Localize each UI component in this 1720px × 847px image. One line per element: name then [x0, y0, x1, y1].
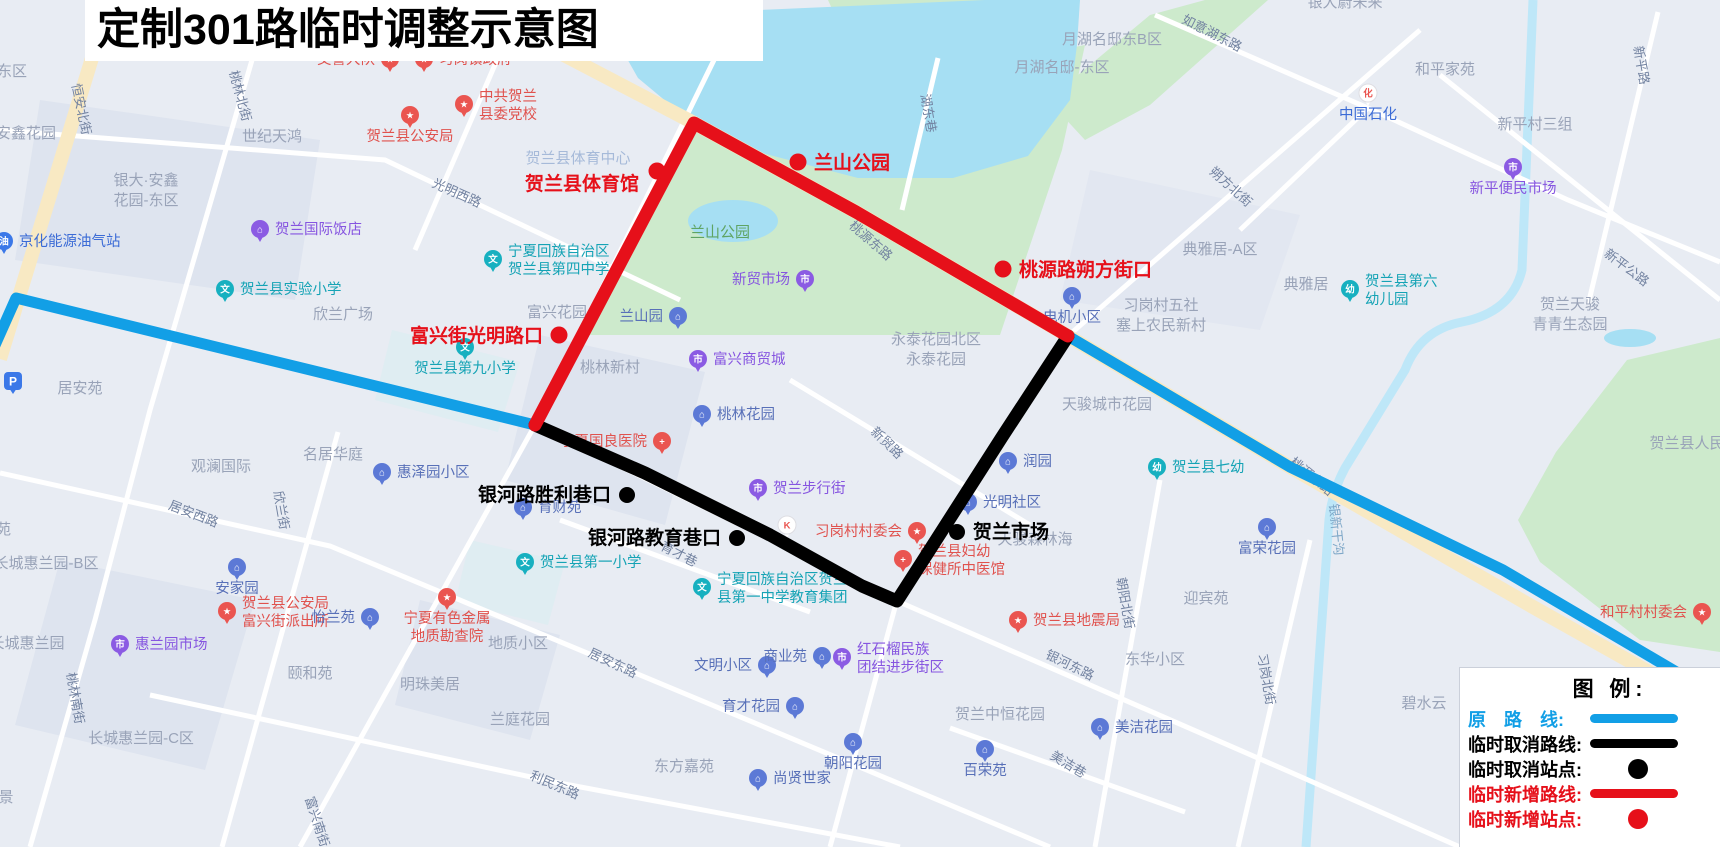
poi-glyph: ⌂ [1069, 292, 1075, 303]
poi-label: 安家园 [215, 580, 259, 597]
poi-glyph: 文 [696, 582, 707, 594]
poi-glyph: ⌂ [1005, 457, 1011, 468]
station-added: 桃源路朔方街口 [995, 258, 1153, 281]
poi-glyph: ★ [460, 100, 469, 111]
legend: 图 例: 原 路 线:临时取消路线:临时取消站点:临时新增路线:临时新增站点: [1459, 667, 1720, 847]
legend-row-label: 临时取消路线: [1468, 731, 1590, 757]
poi-glyph: ⌂ [1264, 523, 1270, 534]
area-label: 新平村三组 [1497, 116, 1572, 133]
title-banner: 定制301路临时调整示意图 [85, 0, 763, 61]
area-label: 富兴花园 [527, 303, 587, 321]
legend-sample [1590, 714, 1686, 723]
area-label: 贺兰中恒花园 [955, 706, 1045, 723]
poi-glyph: ⌂ [819, 652, 825, 663]
poi-label: 美洁花园 [1115, 719, 1173, 736]
poi-glyph: 市 [800, 274, 810, 286]
legend-row: 原 路 线: [1460, 706, 1720, 731]
poi-glyph: ★ [223, 607, 232, 618]
poi-label: 朝阳花园 [824, 755, 882, 772]
area-label: 颐和苑 [287, 665, 332, 682]
area-label: 欣兰广场 [313, 306, 373, 323]
poi-glyph: 文 [519, 557, 530, 569]
station-label: 兰山公园 [814, 151, 890, 174]
station-label: 银河路胜利巷口 [478, 483, 611, 506]
poi-glyph: ★ [1698, 608, 1707, 619]
area-label: 东区 [0, 63, 27, 80]
legend-line-swatch [1590, 739, 1678, 748]
poi-label: 新贸市场 [732, 271, 790, 288]
station-label: 贺兰县体育馆 [524, 172, 639, 195]
poi-glyph: P [9, 375, 17, 389]
poi-glyph: ★ [1014, 616, 1023, 627]
poi-glyph: + [900, 555, 906, 566]
area-label: 迎宾苑 [1183, 590, 1228, 607]
area-label: 景 [0, 789, 14, 806]
station-dot [790, 154, 807, 171]
area-label: 观澜国际 [191, 458, 251, 475]
area-label: 月湖名邸-东区 [1015, 59, 1110, 76]
poi-label: 贺兰国际饭店 [275, 221, 362, 238]
poi-label: 新平便民市场 [1470, 180, 1557, 197]
legend-sample [1590, 809, 1686, 829]
poi-glyph: ⌂ [379, 468, 385, 479]
legend-sample [1590, 759, 1686, 779]
poi-glyph: ⌂ [755, 774, 761, 785]
poi-glyph: 化 [1363, 88, 1373, 100]
poi-glyph: 市 [693, 354, 703, 366]
legend-row: 临时取消站点: [1460, 756, 1720, 781]
station-dot [949, 524, 965, 540]
legend-row-label: 原 路 线: [1468, 706, 1590, 732]
poi-glyph: ⌂ [699, 410, 705, 421]
area-label: 福苑 [0, 521, 11, 538]
legend-title: 图 例: [1460, 673, 1720, 703]
poi-label: 润园 [1023, 453, 1052, 470]
area-label: 居安苑 [57, 380, 102, 397]
poi-glyph: ⌂ [234, 563, 240, 574]
area-label: 银大蔚未来 [1307, 0, 1382, 11]
poi-glyph: 文 [219, 284, 230, 296]
poi-label: 贺兰县公安局 [367, 128, 454, 145]
legend-dot-swatch [1628, 759, 1648, 779]
legend-sample [1590, 789, 1686, 798]
area-label: 天骏城市花园 [1062, 396, 1152, 413]
area-label: 月湖名邸东B区 [1062, 31, 1162, 48]
poi-label: 和平村村委会 [1600, 604, 1687, 621]
station-label: 富兴街光明路口 [410, 324, 543, 347]
poi-glyph: K [784, 521, 791, 532]
station-dot [619, 487, 635, 503]
poi-label: 商业苑 [764, 648, 808, 665]
poi-glyph: ⌂ [850, 738, 856, 749]
legend-rows: 原 路 线:临时取消路线:临时取消站点:临时新增路线:临时新增站点: [1460, 706, 1720, 831]
station-label: 桃源路朔方街口 [1019, 258, 1152, 281]
poi-label: 贺兰县地震局 [1033, 612, 1120, 629]
area-label: 地质小区 [488, 635, 548, 652]
poi-glyph: 市 [115, 639, 125, 651]
area-label: 世纪天鸿 [242, 128, 302, 145]
poi-glyph: ⌂ [675, 312, 681, 323]
area-label: 典雅居-A区 [1182, 241, 1257, 258]
area-label: 东方嘉苑 [654, 758, 714, 775]
poi-glyph: 油 [0, 236, 9, 248]
poi-glyph: ⌂ [367, 613, 373, 624]
station-dot [551, 327, 568, 344]
poi-label: 贺兰县第一小学 [540, 553, 642, 571]
poi-label: 贺兰县七幼 [1172, 459, 1245, 476]
station-dot [995, 261, 1012, 278]
area-label: 兰庭花园 [490, 711, 550, 728]
legend-line-swatch [1590, 789, 1678, 798]
poi-label: 光明社区 [983, 494, 1041, 511]
poi-label: 中国石化 [1339, 106, 1397, 123]
poi-glyph: ★ [913, 527, 922, 538]
area-label: 桃林新村 [580, 359, 640, 376]
area-label: 贺兰县人民医院 [1649, 434, 1720, 452]
poi-label: 桃林花园 [717, 406, 775, 423]
legend-dot-swatch [1628, 809, 1648, 829]
legend-row-label: 临时新增路线: [1468, 781, 1590, 807]
area-label: 长城惠兰园 [0, 635, 65, 652]
poi-glyph: 幼 [1345, 284, 1355, 296]
legend-row-label: 临时取消站点: [1468, 756, 1590, 782]
area-label: 长城惠兰园-C区 [88, 730, 194, 747]
station-label: 银河路教育巷口 [588, 526, 721, 549]
station-dot [729, 530, 745, 546]
poi-label: 贺兰县实验小学 [240, 281, 342, 298]
poi-glyph: ⌂ [257, 225, 263, 236]
area-label: 碧水云 [1401, 695, 1446, 712]
area-label: 长城惠兰园-B区 [0, 555, 99, 572]
area-label: 名居华庭 [303, 446, 363, 463]
legend-row-label: 临时新增站点: [1468, 806, 1590, 832]
poi-label: 文明小区 [694, 657, 752, 674]
poi-glyph: ★ [406, 111, 415, 122]
area-label: 东华小区 [1125, 651, 1185, 668]
area-label: 兰山公园 [690, 224, 750, 241]
area-label: 典雅居 [1283, 276, 1328, 293]
legend-line-swatch [1590, 714, 1678, 723]
poi-glyph: 市 [837, 652, 847, 664]
area-label: 贺兰县体育中心 [525, 150, 630, 167]
legend-sample [1590, 739, 1686, 748]
area-label: 和平家苑 [1415, 61, 1475, 78]
poi-label: 怡兰苑 [312, 609, 356, 626]
poi-label: 京化能源油气站 [19, 233, 121, 250]
poi-label: 兰山园 [620, 308, 664, 325]
area-label: 安鑫花园 [0, 124, 56, 142]
legend-row: 临时新增路线: [1460, 781, 1720, 806]
station-label: 贺兰市场 [972, 520, 1049, 543]
poi-label: 习岗村村委会 [815, 523, 902, 540]
station-dot [649, 163, 666, 180]
poi-glyph: + [659, 437, 665, 448]
route-adjustment-diagram: 恒安北街桃林北街光明西路湖东巷如意湖东路朔方北街新平路新平公路桃源东路桃源东路银… [0, 0, 1720, 847]
poi-label: 育才花园 [722, 698, 780, 715]
area-label: 明珠美居 [400, 676, 460, 693]
page-title: 定制301路临时调整示意图 [85, 0, 763, 60]
poi-label: 惠泽园小区 [397, 464, 470, 481]
poi-label: 惠兰园市场 [135, 636, 208, 653]
poi-glyph: ⌂ [1097, 723, 1103, 734]
poi-glyph: ⌂ [792, 702, 798, 713]
legend-row: 临时取消路线: [1460, 731, 1720, 756]
poi-glyph: 幼 [1152, 462, 1162, 474]
poi-glyph: ★ [443, 593, 452, 604]
poi-glyph: 市 [1508, 162, 1518, 174]
poi-label: 富兴商贸城 [713, 350, 786, 368]
poi-label: 百荣苑 [963, 762, 1007, 779]
poi-label: 贺兰县第九小学 [414, 359, 516, 377]
poi-glyph: 市 [753, 483, 763, 495]
poi-label: 尚贤世家 [773, 770, 831, 787]
poi-glyph: 文 [487, 254, 498, 266]
legend-row: 临时新增站点: [1460, 806, 1720, 831]
poi-glyph: ⌂ [982, 745, 988, 756]
poi-label: 富荣花园 [1238, 539, 1296, 557]
poi-label: 贺兰步行街 [773, 480, 846, 497]
